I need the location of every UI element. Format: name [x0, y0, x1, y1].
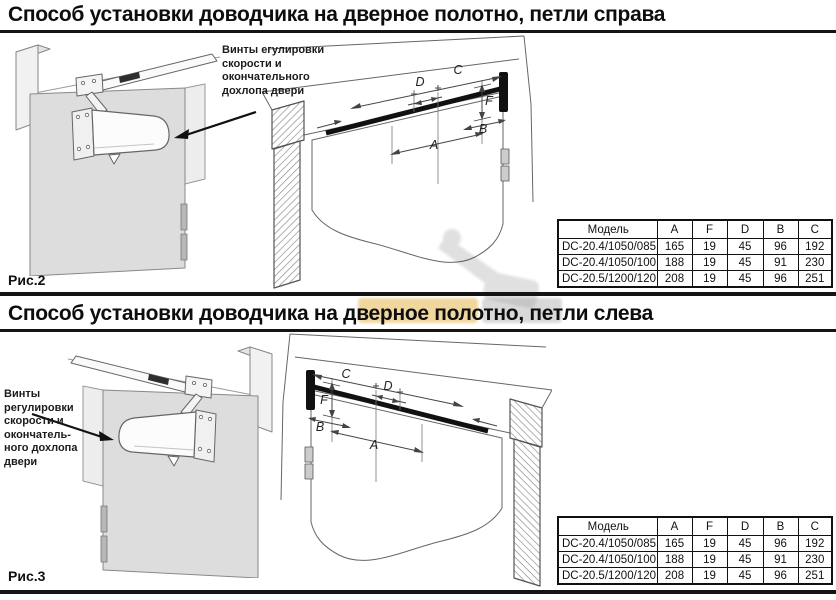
cell-value: 230 [798, 552, 832, 568]
divider-under-title2 [0, 329, 836, 332]
table-row: DC-20.5/1200/120 208 19 45 96 251 [558, 568, 832, 585]
dim-label-b: B [479, 122, 487, 136]
table-header-row: Модель A F D B C [558, 517, 832, 536]
cell-value: 165 [657, 239, 692, 255]
section-divider [0, 292, 836, 296]
cell-value: 165 [657, 536, 692, 552]
cell-value: 188 [657, 255, 692, 271]
cell-model: DC-20.4/1050/085 [558, 536, 657, 552]
callout-line: Винты [4, 388, 104, 402]
cell-value: 230 [798, 255, 832, 271]
divider-under-title1 [0, 30, 836, 33]
figure-mounting-dimensions-hinges-left: C D F B A [262, 332, 552, 594]
callout-line: дохлопа двери [222, 85, 334, 99]
dim-label-d: D [383, 379, 392, 393]
col-header-b: B [763, 220, 798, 239]
cell-value: 96 [763, 239, 798, 255]
cell-value: 96 [763, 536, 798, 552]
cell-value: 19 [692, 552, 727, 568]
col-header-f: F [692, 517, 727, 536]
cell-model: DC-20.4/1050/085 [558, 239, 657, 255]
cell-value: 45 [727, 568, 763, 585]
cell-value: 45 [727, 271, 763, 288]
col-header-model: Модель [558, 517, 657, 536]
cell-value: 45 [727, 536, 763, 552]
callout-line: двери [4, 456, 104, 470]
dim-label-b: B [316, 420, 324, 434]
cell-value: 45 [727, 552, 763, 568]
callout-line: скорости и [4, 415, 104, 429]
section2-title: Способ установки доводчика на дверное по… [8, 301, 653, 327]
cell-value: 208 [657, 271, 692, 288]
cell-value: 96 [763, 568, 798, 585]
callout-adjustment-screws-2: Винты регулировки скорости и окончатель-… [4, 388, 104, 469]
cell-value: 96 [763, 271, 798, 288]
callout-line: скорости и [222, 58, 334, 72]
dim-label-d: D [415, 75, 424, 89]
col-header-b: B [763, 517, 798, 536]
dim-label-c: C [341, 367, 351, 381]
col-header-f: F [692, 220, 727, 239]
table-row: DC-20.4/1050/100 188 19 45 91 230 [558, 255, 832, 271]
cell-model: DC-20.5/1200/120 [558, 568, 657, 585]
cell-value: 19 [692, 536, 727, 552]
cell-value: 192 [798, 239, 832, 255]
figure2-label: Рис.2 [8, 272, 45, 288]
cell-value: 192 [798, 536, 832, 552]
table-row: DC-20.4/1050/085 165 19 45 96 192 [558, 239, 832, 255]
cell-value: 251 [798, 271, 832, 288]
col-header-c: C [798, 220, 832, 239]
cell-model: DC-20.4/1050/100 [558, 552, 657, 568]
dimensions-table-1: Модель A F D B C DC-20.4/1050/085 165 19… [557, 219, 833, 288]
callout-line: регулировки [4, 402, 104, 416]
bottom-rule [0, 590, 836, 594]
cell-model: DC-20.5/1200/120 [558, 271, 657, 288]
callout-line: окончатель- [4, 429, 104, 443]
cell-value: 19 [692, 239, 727, 255]
table-header-row: Модель A F D B C [558, 220, 832, 239]
table-row: DC-20.4/1050/100 188 19 45 91 230 [558, 552, 832, 568]
section1-title: Способ установки доводчика на дверное по… [8, 2, 665, 28]
col-header-a: A [657, 517, 692, 536]
cell-value: 91 [763, 552, 798, 568]
col-header-model: Модель [558, 220, 657, 239]
cell-value: 19 [692, 271, 727, 288]
cell-value: 251 [798, 568, 832, 585]
table-row: DC-20.5/1200/120 208 19 45 96 251 [558, 271, 832, 288]
figure3-label: Рис.3 [8, 568, 45, 584]
cell-value: 19 [692, 255, 727, 271]
document-page: Способ установки доводчика на дверное по… [0, 0, 836, 600]
cell-value: 188 [657, 552, 692, 568]
col-header-c: C [798, 517, 832, 536]
dim-label-a: A [369, 438, 378, 452]
callout-adjustment-screws-1: Винты егулировки скорости и окончательно… [222, 44, 334, 98]
cell-model: DC-20.4/1050/100 [558, 255, 657, 271]
figure-door-closer-hinges-right [8, 36, 258, 276]
cell-value: 45 [727, 255, 763, 271]
cell-value: 45 [727, 239, 763, 255]
col-header-d: D [727, 220, 763, 239]
callout-line: ного дохлопа [4, 442, 104, 456]
callout-line: окончательного [222, 71, 334, 85]
dim-label-c: C [453, 63, 463, 77]
col-header-a: A [657, 220, 692, 239]
dimensions-table-2: Модель A F D B C DC-20.4/1050/085 165 19… [557, 516, 833, 585]
callout-line: Винты егулировки [222, 44, 334, 58]
dim-label-a: A [429, 138, 438, 152]
cell-value: 19 [692, 568, 727, 585]
cell-value: 91 [763, 255, 798, 271]
table-row: DC-20.4/1050/085 165 19 45 96 192 [558, 536, 832, 552]
cell-value: 208 [657, 568, 692, 585]
col-header-d: D [727, 517, 763, 536]
